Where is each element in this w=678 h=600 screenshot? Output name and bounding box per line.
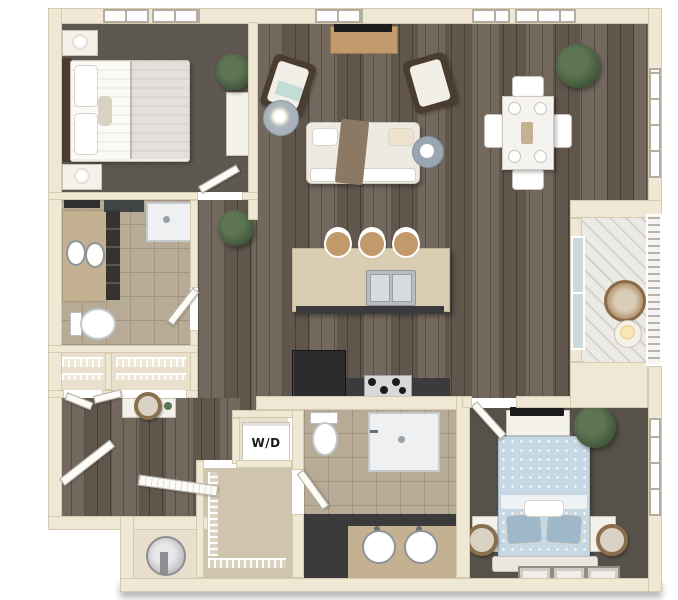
- tv: [334, 23, 392, 32]
- wall-walkin-left: [196, 460, 204, 578]
- closet1-wire-shelf: [62, 357, 103, 367]
- wall-bath1-corridor-a: [190, 200, 198, 288]
- washer-dryer-label: W/D: [251, 436, 280, 450]
- wall-closet-divider: [105, 353, 112, 390]
- sliding-door-glass-a: [571, 236, 585, 294]
- wall-bath1-closets: [48, 345, 198, 353]
- sofa-pillow: [388, 128, 414, 146]
- water-heater-pipe: [160, 552, 168, 574]
- dining-chair-east: [552, 114, 572, 148]
- bath2-shower-pan: [368, 412, 440, 472]
- bed2-accent-pillow: [524, 500, 564, 517]
- bedroom1-dresser: [226, 92, 250, 156]
- bath2-toilet-bowl: [312, 422, 338, 456]
- window-bedroom1-left: [103, 9, 149, 23]
- window-living-top: [315, 9, 363, 23]
- bath2-sink-left: [362, 530, 396, 564]
- wall-bottom-outer: [120, 578, 662, 592]
- bath2-dark-cabinet: [304, 514, 348, 578]
- sink-basin-left: [370, 274, 390, 302]
- wall-bedroom1-bath1-a: [48, 192, 198, 200]
- window-bedroom2-right: [649, 418, 661, 516]
- bed2-pillow: [545, 513, 583, 545]
- wall-laundry-top: [232, 410, 296, 418]
- bath2-counter-backsplash: [348, 514, 456, 526]
- bath2-shower-drain: [398, 436, 405, 443]
- bath1-sink-right: [85, 242, 105, 268]
- refrigerator: [292, 350, 346, 398]
- closet1-hang-rod: [62, 373, 103, 380]
- wall-bath1-corridor-b: [190, 330, 198, 398]
- balcony-round-chair: [604, 280, 646, 322]
- bedroom1-plant: [216, 54, 252, 90]
- place-setting: [534, 102, 547, 115]
- floor-plan: W/D: [0, 0, 678, 600]
- wall-bedroom2-left: [456, 396, 470, 578]
- dining-corner-palm: [556, 44, 600, 88]
- table-decor-bowl: [420, 144, 434, 158]
- stove-burner: [399, 387, 406, 394]
- bed1-accent-pillow: [98, 96, 112, 126]
- table-lamp: [74, 168, 90, 184]
- bed2-pillow: [505, 513, 543, 545]
- stove-burner: [368, 378, 376, 386]
- bed1-pillow: [74, 65, 98, 107]
- island-cabinet-base: [296, 306, 444, 314]
- entry-round-mirror: [134, 392, 162, 420]
- bar-stool: [324, 230, 352, 258]
- sliding-door-glass-b: [571, 292, 585, 350]
- place-setting: [508, 150, 521, 163]
- place-setting: [508, 102, 521, 115]
- balcony-railing: [646, 214, 662, 366]
- wall-bedroom1-living: [248, 22, 258, 220]
- washer-dryer-unit: W/D: [242, 422, 290, 464]
- wall-left-outer: [48, 8, 62, 528]
- window-dining-right: [649, 68, 661, 178]
- wall-balcony-bottom: [570, 362, 648, 408]
- table-lamp: [72, 34, 88, 50]
- dining-chair-north: [512, 76, 544, 98]
- bath1-shower-pan: [146, 202, 192, 242]
- bed1-duvet-fold: [130, 61, 189, 159]
- sink-basin-right: [392, 274, 412, 302]
- console-decor: [164, 402, 172, 410]
- stove-burner: [380, 386, 388, 394]
- bath1-vanity-drawers: [106, 210, 120, 300]
- bath1-shower-glass: [104, 200, 144, 212]
- wall-bedroom1-bath1-b: [242, 192, 258, 200]
- wall-kitchen-south: [256, 396, 462, 410]
- place-setting: [534, 150, 547, 163]
- walkin-wire-shelf-bottom: [208, 558, 286, 568]
- wall-bath2-left-b: [292, 514, 304, 578]
- closet2-hang-rod: [116, 373, 186, 380]
- closet2-wire-shelf: [116, 357, 186, 367]
- side-table-lamp: [271, 108, 288, 125]
- wall-laundry-left: [232, 418, 240, 464]
- window-dining-top-left: [472, 9, 510, 23]
- bath2-sink-right: [404, 530, 438, 564]
- window-bedroom1-right: [152, 9, 200, 23]
- sofa-pillow: [312, 128, 338, 146]
- balcony-lamp: [620, 325, 635, 340]
- bar-stool: [392, 230, 420, 258]
- bedroom2-palm: [574, 406, 616, 448]
- wall-bath2-left-a: [292, 410, 304, 470]
- shower-drain: [163, 216, 170, 223]
- wall-closet-entry-a: [48, 390, 64, 398]
- bath1-sink-left: [66, 240, 86, 266]
- bed1-pillow: [74, 113, 98, 155]
- bath2-shower-fixture: [370, 430, 378, 433]
- bar-stool: [358, 230, 386, 258]
- bath1-toilet-bowl: [80, 308, 116, 340]
- dining-chair-south: [512, 168, 544, 190]
- bedroom2-tv: [510, 407, 564, 416]
- table-centerpiece: [521, 122, 533, 144]
- window-dining-top-right: [515, 9, 576, 23]
- leaning-mirror-right: [596, 524, 628, 556]
- stove-burner: [392, 378, 400, 386]
- dining-chair-west: [484, 114, 504, 148]
- wall-walkin-top: [236, 460, 292, 468]
- leaning-mirror-left: [466, 524, 498, 556]
- wall-closet-entry-c: [186, 390, 198, 398]
